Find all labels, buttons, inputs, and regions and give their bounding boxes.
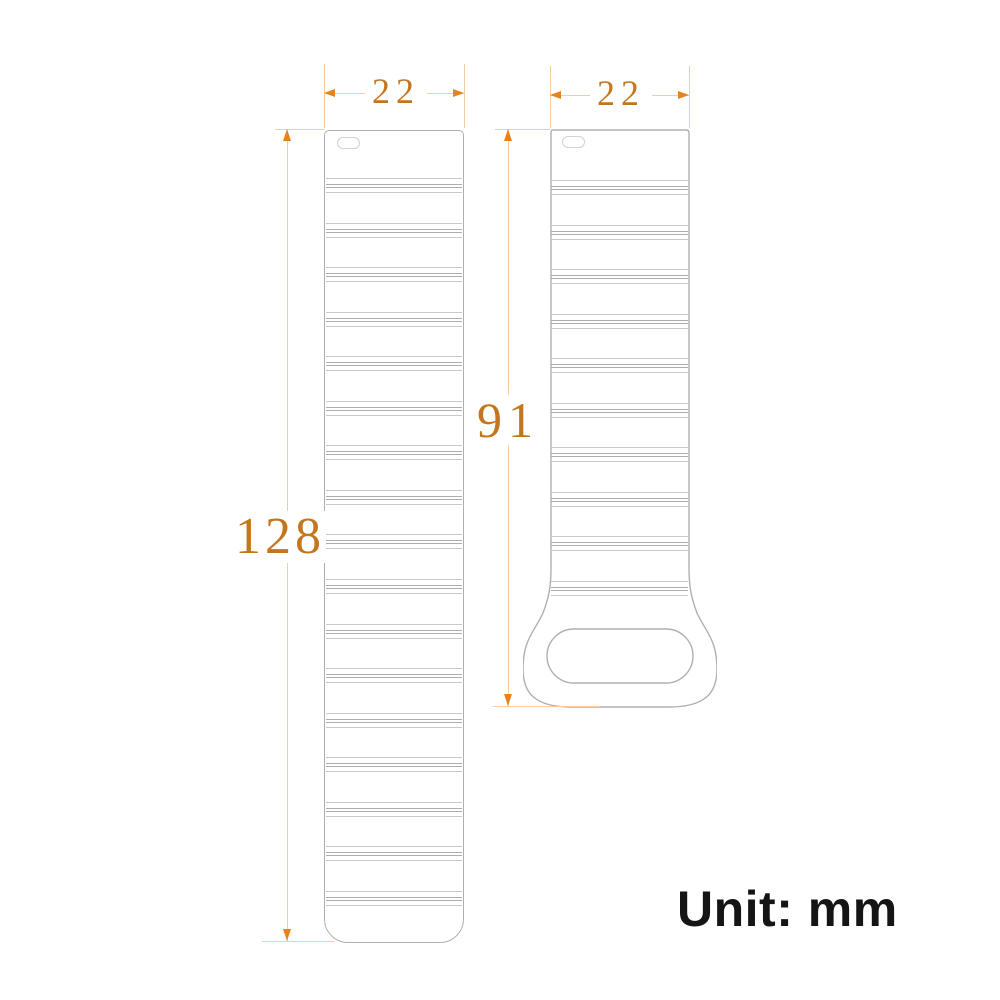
short-strap-ridge-group (551, 403, 688, 418)
long-strap-ridge-group (326, 802, 462, 817)
short-strap-body-path (523, 130, 717, 707)
arrow-left-icon (324, 89, 335, 97)
arrow-right-icon (678, 91, 689, 99)
long-strap-spring-bar-slot (337, 137, 360, 149)
long-strap-ridge-group (326, 178, 462, 193)
long-strap-ridge-group (326, 312, 462, 327)
arrow-down-icon (504, 694, 512, 706)
arrow-right-icon (453, 89, 464, 97)
arrow-down-icon (283, 929, 291, 941)
short-strap-ridge-group (551, 536, 688, 551)
dim-label-long-width: 22 (365, 73, 427, 109)
short-strap-ridge-group (551, 180, 688, 195)
short-strap-ridge-group (551, 581, 688, 596)
short-strap-ridge-group (551, 358, 688, 373)
short-strap-ridge-group (551, 225, 688, 240)
long-strap-ridge-group (326, 846, 462, 861)
long-strap-ridge-group (326, 668, 462, 683)
long-strap-ridge-group (326, 356, 462, 371)
short-strap-outline (523, 129, 717, 709)
long-strap-ridge-group (326, 891, 462, 906)
short-strap-ridge-group (551, 447, 688, 462)
long-strap-ridge-group (326, 490, 462, 505)
long-strap-ridge-group (326, 713, 462, 728)
dim-label-long-length: 128 (228, 511, 332, 563)
long-strap-ridge-group (326, 445, 462, 460)
long-strap-ridge-group (326, 757, 462, 772)
dim-label-short-width: 22 (590, 75, 652, 111)
arrow-up-icon (504, 129, 512, 141)
unit-note: Unit: mm (677, 884, 898, 934)
short-strap-spring-bar-slot (562, 136, 585, 148)
arrow-left-icon (550, 91, 561, 99)
buckle-loop-hole (547, 629, 693, 683)
short-strap-ridge-group (551, 314, 688, 329)
long-strap-ridge-group (326, 624, 462, 639)
long-strap-ridge-group (326, 223, 462, 238)
strap-dimension-diagram: 22 22 128 91 Unit: mm (0, 0, 1000, 1000)
arrow-up-icon (283, 129, 291, 141)
dim-label-short-length: 91 (470, 395, 546, 445)
long-strap-ridge-group (326, 579, 462, 594)
long-strap-ridge-group (326, 534, 462, 549)
short-strap-ridge-group (551, 269, 688, 284)
long-strap-ridge-group (326, 401, 462, 416)
long-strap-ridge-group (326, 267, 462, 282)
ext-line (262, 941, 334, 942)
short-strap-ridge-group (551, 492, 688, 507)
